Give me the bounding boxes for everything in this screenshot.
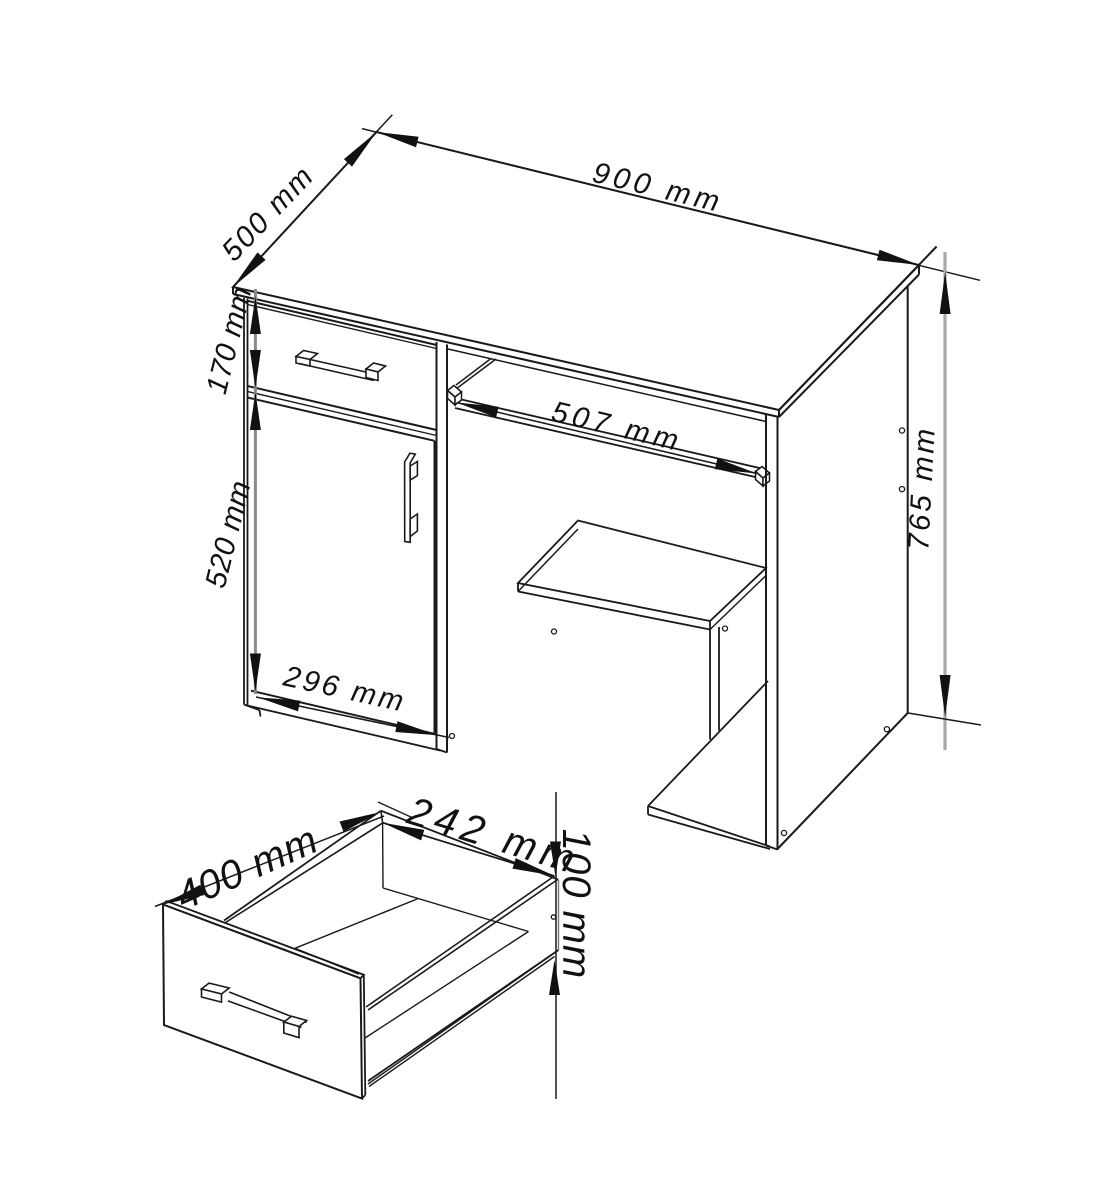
svg-text:100 mm: 100 mm bbox=[554, 829, 598, 980]
svg-text:765 mm: 765 mm bbox=[902, 425, 941, 551]
